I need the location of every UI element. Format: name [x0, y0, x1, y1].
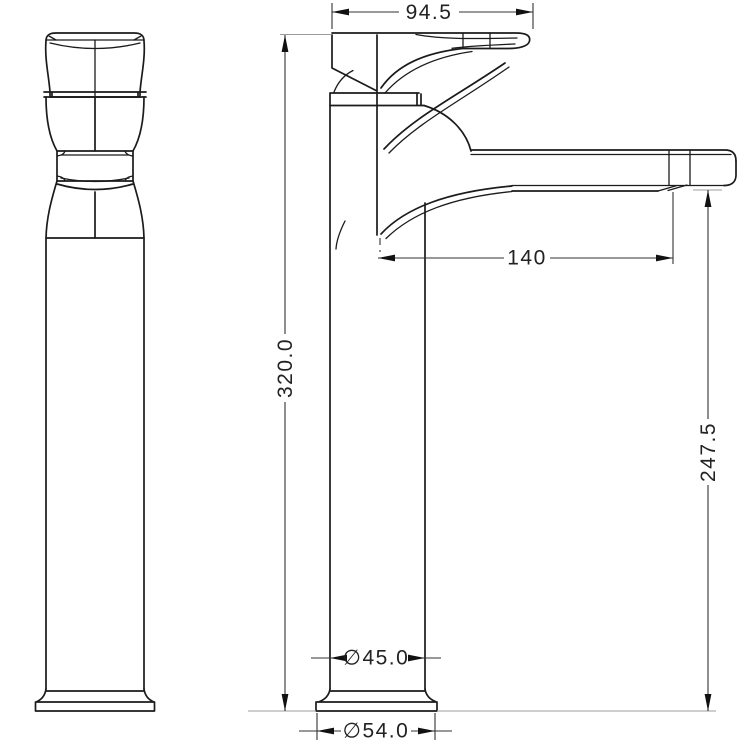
- dim-140-arrow-right: [656, 255, 673, 262]
- front-handle-block: [332, 35, 377, 235]
- faucet-front-view: [316, 33, 736, 711]
- faucet-side-view: [36, 33, 155, 711]
- dim-94-arrow-left: [332, 9, 349, 16]
- dim-247-label: 247.5: [697, 422, 720, 482]
- dim-45-arrow-right: [408, 655, 425, 662]
- front-handle-lever: [332, 33, 530, 49]
- dim-45-label: ∅45.0: [343, 647, 410, 670]
- front-aerator-lines: [669, 150, 690, 186]
- dim-spout-reach: 140: [378, 192, 673, 270]
- technical-drawing-page: 94.5 320.0 140 247.5 ∅45.0: [0, 0, 744, 744]
- dim-54-label: ∅54.0: [343, 720, 410, 743]
- side-middle-band-inner: [57, 151, 133, 182]
- dim-spout-height: 247.5: [697, 190, 720, 711]
- side-base: [36, 689, 155, 711]
- front-body-edge-stub: [336, 221, 345, 249]
- front-handle-sweep-outer: [381, 49, 462, 89]
- side-lower-body: [46, 181, 144, 238]
- extension-lines: [248, 35, 722, 712]
- front-handle-sweep-inner: [385, 52, 472, 94]
- dim-320-arrow-top: [282, 35, 289, 52]
- dim-320-label: 320.0: [274, 338, 297, 398]
- front-spout-top: [471, 150, 736, 161]
- front-trumpet-top: [424, 106, 471, 152]
- dim-247-arrow-top: [705, 190, 712, 207]
- side-column: [46, 238, 144, 689]
- dim-94-label: 94.5: [406, 1, 453, 24]
- faucet-dimension-drawing: 94.5 320.0 140 247.5 ∅45.0: [0, 0, 744, 744]
- dim-overall-height: 320.0: [274, 35, 297, 711]
- side-upper-body: [46, 97, 144, 151]
- dimensions: 94.5 320.0 140 247.5 ∅45.0: [274, 1, 720, 743]
- front-rear-curve-inner: [389, 67, 509, 153]
- dim-320-arrow-bottom: [282, 694, 289, 711]
- dim-54-arrow-right: [418, 728, 435, 735]
- dim-54-arrow-left: [317, 728, 334, 735]
- front-base: [316, 689, 437, 711]
- dim-140-label: 140: [507, 247, 547, 270]
- dim-base-diameter: ∅54.0: [299, 713, 452, 743]
- front-handle-lever-inner-top: [416, 35, 517, 39]
- dim-94-arrow-right: [516, 9, 533, 16]
- dim-140-arrow-left: [378, 255, 395, 262]
- dim-247-arrow-bottom: [705, 694, 712, 711]
- front-spout-tip: [724, 161, 736, 186]
- dim-handle-width: 94.5: [332, 1, 533, 29]
